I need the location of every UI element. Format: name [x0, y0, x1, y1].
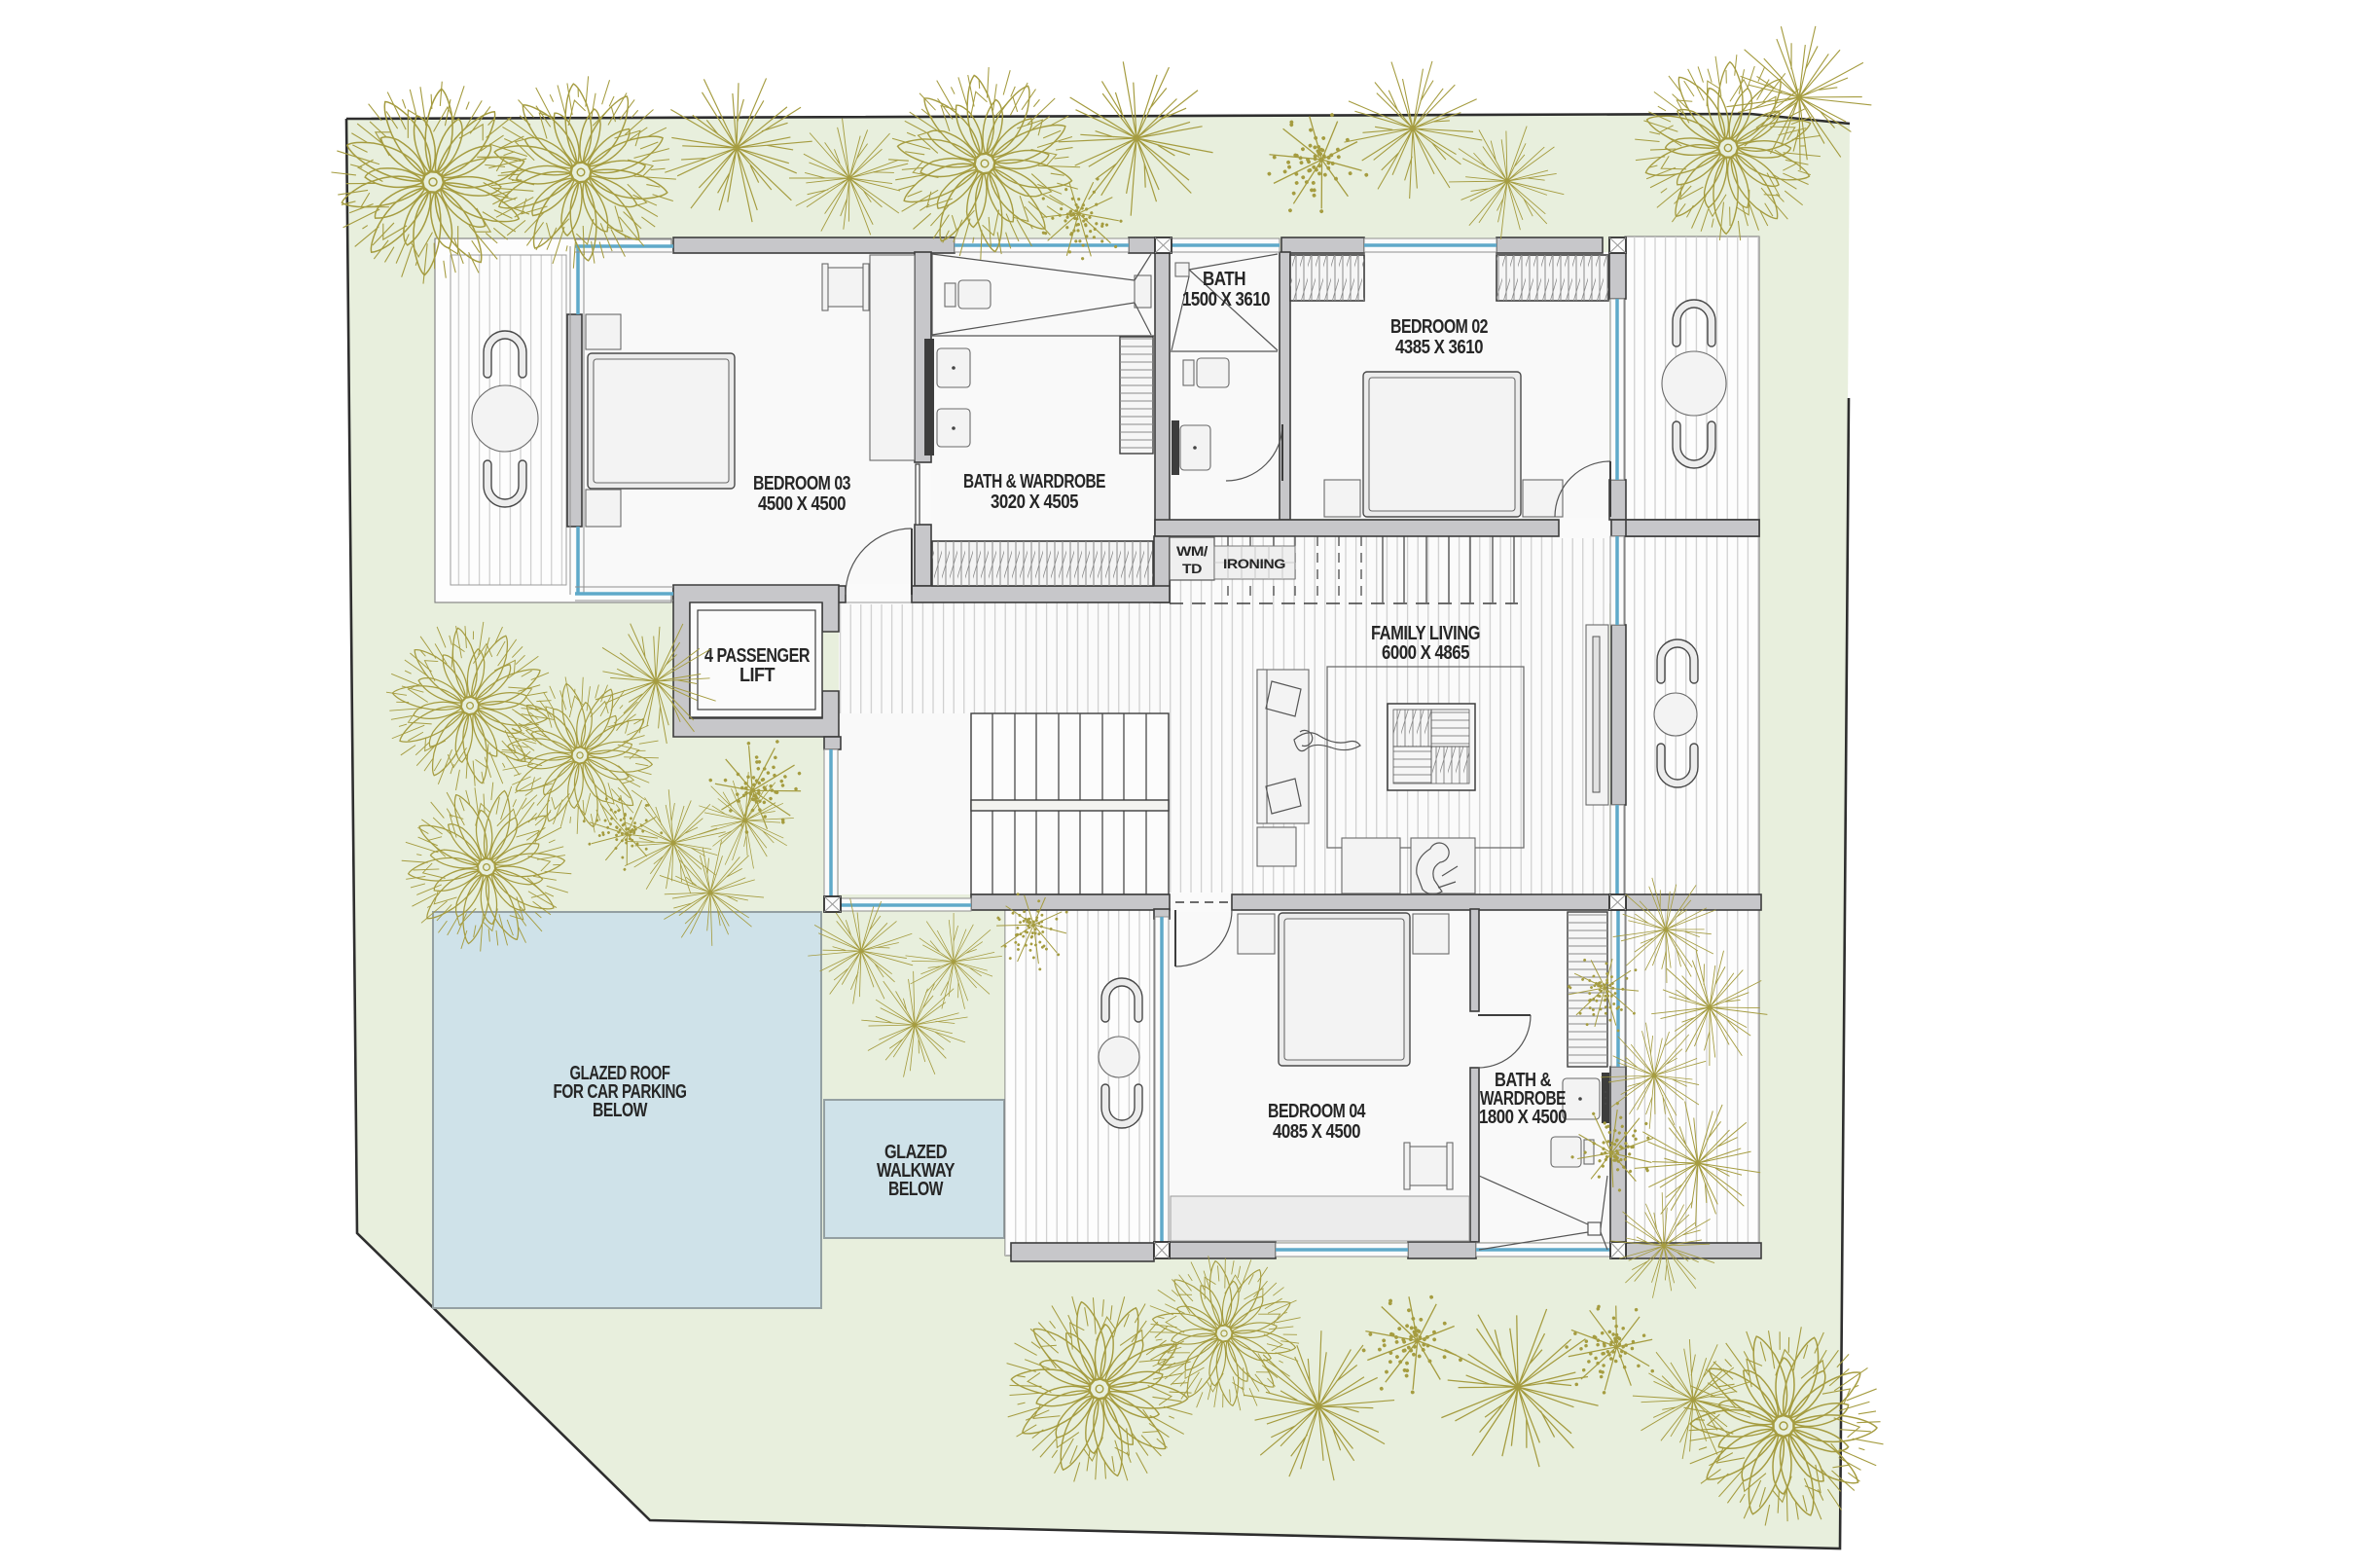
- svg-text:BATH & WARDROBE: BATH & WARDROBE: [963, 471, 1105, 492]
- svg-text:BELOW: BELOW: [888, 1179, 944, 1200]
- svg-text:FAMILY LIVING: FAMILY LIVING: [1371, 623, 1480, 644]
- svg-text:WM/: WM/: [1176, 543, 1208, 559]
- svg-text:BEDROOM 03: BEDROOM 03: [753, 473, 850, 494]
- svg-text:LIFT: LIFT: [739, 665, 775, 686]
- svg-text:BEDROOM 04: BEDROOM 04: [1268, 1101, 1366, 1122]
- svg-text:TD: TD: [1182, 561, 1202, 576]
- svg-text:1500 X 3610: 1500 X 3610: [1182, 289, 1270, 310]
- svg-text:BATH: BATH: [1203, 269, 1245, 290]
- svg-text:4500 X 4500: 4500 X 4500: [758, 493, 846, 515]
- svg-text:4085 X 4500: 4085 X 4500: [1273, 1121, 1360, 1143]
- svg-text:BELOW: BELOW: [593, 1100, 648, 1121]
- svg-text:1800 X 4500: 1800 X 4500: [1479, 1107, 1567, 1128]
- svg-text:BEDROOM 02: BEDROOM 02: [1390, 316, 1488, 338]
- svg-text:IRONING: IRONING: [1223, 556, 1286, 571]
- svg-text:6000 X 4865: 6000 X 4865: [1382, 642, 1469, 664]
- svg-text:4385 X 3610: 4385 X 3610: [1395, 337, 1483, 358]
- svg-text:3020 X 4505: 3020 X 4505: [991, 492, 1078, 513]
- svg-text:4 PASSENGER: 4 PASSENGER: [704, 645, 811, 667]
